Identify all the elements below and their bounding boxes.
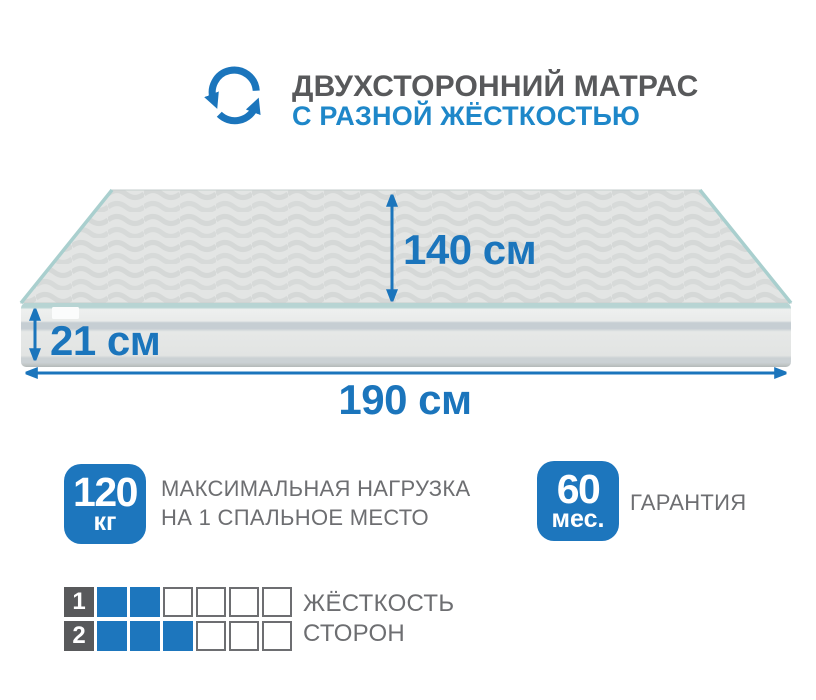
max-load-unit: кг (94, 510, 117, 534)
firmness-cell-empty (262, 587, 292, 617)
firmness-label: ЖЁСТКОСТЬ СТОРОН (303, 589, 454, 649)
firmness-cell-filled (130, 587, 160, 617)
rotate-arrows-icon (202, 64, 268, 130)
firmness-cell-empty (229, 621, 259, 651)
warranty-label: ГАРАНТИЯ (630, 488, 746, 517)
max-load-label-line1: МАКСИМАЛЬНАЯ НАГРУЗКА (161, 474, 470, 503)
warranty-badge: 60 мес. (537, 461, 619, 541)
page-subtitle: С РАЗНОЙ ЖЁСТКОСТЬЮ (292, 101, 792, 132)
firmness-row-number: 1 (64, 587, 94, 617)
mattress-infographic: ДВУХСТОРОННИЙ МАТРАС С РАЗНОЙ ЖЁСТКОСТЬЮ (0, 0, 816, 700)
firmness-label-line2: СТОРОН (303, 619, 454, 649)
page-title: ДВУХСТОРОННИЙ МАТРАС (292, 70, 792, 104)
width-dimension-label: 140 см (403, 226, 536, 273)
mattress-diagram: 140 см 21 см 190 см (0, 160, 816, 440)
max-load-value: 120 (73, 474, 137, 510)
length-dimension-label: 190 см (338, 376, 471, 423)
firmness-cell-empty (262, 621, 292, 651)
firmness-cell-empty (196, 621, 226, 651)
firmness-row: 2 (64, 621, 292, 651)
firmness-cell-empty (196, 587, 226, 617)
firmness-cell-empty (163, 587, 193, 617)
firmness-cell-empty (229, 587, 259, 617)
max-load-badge: 120 кг (64, 464, 146, 544)
firmness-cell-filled (97, 587, 127, 617)
firmness-row: 1 (64, 587, 292, 617)
height-dimension-label: 21 см (50, 317, 160, 364)
firmness-row-number: 2 (64, 621, 94, 651)
firmness-scale: 12 (64, 587, 292, 651)
max-load-label: МАКСИМАЛЬНАЯ НАГРУЗКА НА 1 СПАЛЬНОЕ МЕСТ… (161, 474, 470, 532)
firmness-cell-filled (130, 621, 160, 651)
max-load-label-line2: НА 1 СПАЛЬНОЕ МЕСТО (161, 503, 470, 532)
firmness-label-line1: ЖЁСТКОСТЬ (303, 589, 454, 619)
warranty-label-line1: ГАРАНТИЯ (630, 488, 746, 517)
firmness-cell-filled (97, 621, 127, 651)
warranty-unit: мес. (552, 507, 605, 531)
warranty-value: 60 (557, 471, 600, 507)
firmness-cell-filled (163, 621, 193, 651)
